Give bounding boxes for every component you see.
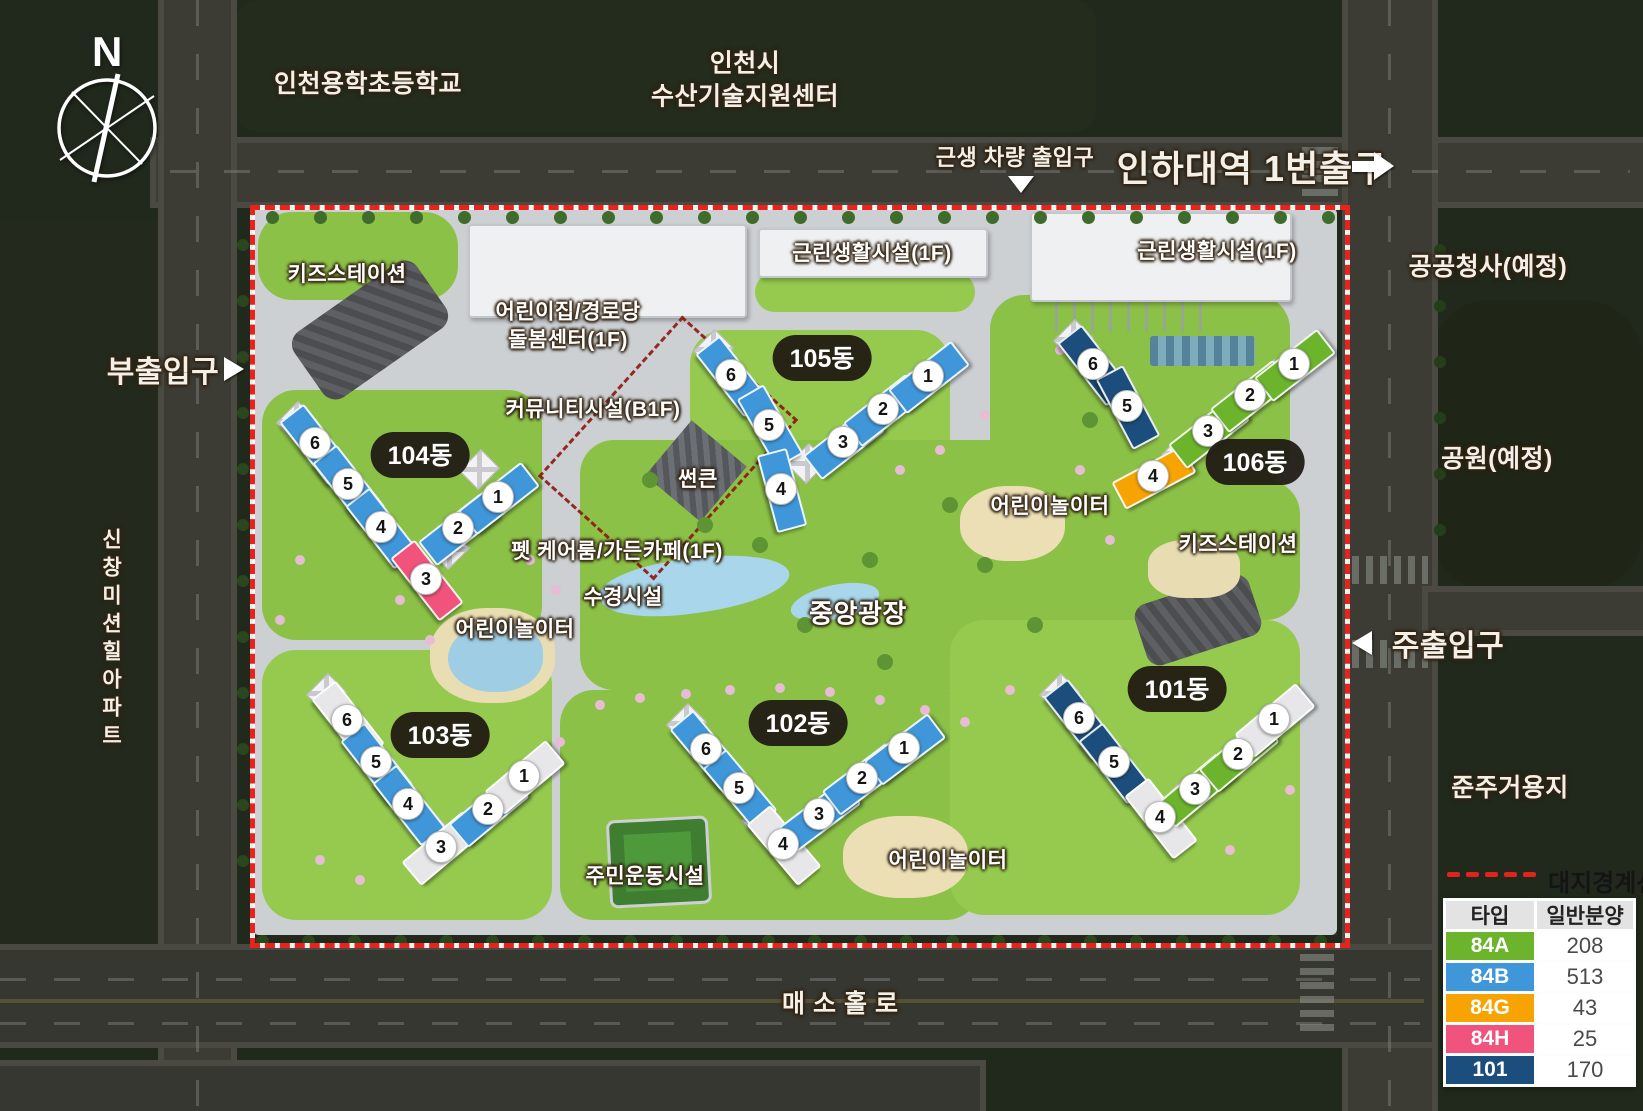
unit-number-badge: 6 [1063, 702, 1095, 734]
unit-number-badge: 3 [1179, 773, 1211, 805]
label-playground-s: 어린이놀이터 [889, 844, 1008, 874]
bush [1082, 412, 1098, 428]
unit-number-badge: 1 [912, 360, 944, 392]
label-sub-entrance: 부출입구 [107, 347, 219, 391]
legend-type-cell: 84G [1446, 994, 1534, 1022]
street-tree [1084, 935, 1097, 948]
street-tree [716, 935, 729, 948]
street-tree [842, 211, 855, 224]
sub-entrance-arrow-icon [224, 357, 244, 381]
street-tree [237, 687, 249, 699]
label-school: 인천용학초등학교 [274, 64, 462, 100]
street-tree [746, 211, 759, 224]
street-tree [1434, 356, 1446, 368]
label-retail-b: 근린생활시설(1F) [1137, 235, 1296, 265]
blossom-tree [315, 855, 325, 865]
unit-number-badge: 1 [888, 732, 920, 764]
unit-number-badge: 4 [365, 511, 397, 543]
label-semi-residential: 준주거용지 [1451, 768, 1569, 804]
unit-number-badge: 4 [765, 473, 797, 505]
bush [1027, 617, 1043, 633]
street-tree [237, 519, 249, 531]
unit-type-legend-table: 타입 일반분양 84A20884B51384G4384H25101170 [1443, 898, 1636, 1087]
building-label: 106동 [1206, 439, 1305, 485]
street-tree [348, 935, 361, 948]
blossom-tree [681, 689, 691, 699]
label-main-entrance: 주출입구 [1392, 621, 1504, 665]
street-tree [650, 211, 663, 224]
street-tree [1434, 412, 1446, 424]
legend-header-sale: 일반분양 [1537, 901, 1633, 929]
blossom-tree [935, 445, 945, 455]
unit-number-badge: 5 [360, 746, 392, 778]
compass-rose: N [44, 28, 174, 193]
blossom-tree [1225, 845, 1235, 855]
unit-number-badge: 2 [442, 512, 474, 544]
street-tree [1222, 935, 1235, 948]
street-tree [237, 463, 249, 475]
street-tree [302, 935, 315, 948]
street-tree [486, 935, 499, 948]
street-tree [554, 211, 567, 224]
crosswalk [1300, 954, 1334, 1038]
bush [862, 552, 878, 568]
street-tree [1274, 211, 1287, 224]
unit-number-badge: 2 [472, 793, 504, 825]
main-entrance-arrow-icon [1352, 631, 1372, 655]
label-fisheries-line1: 인천시 [710, 50, 781, 78]
label-residents-exercise: 주민운동시설 [586, 860, 705, 890]
blossom-tree [725, 685, 735, 695]
label-park: 공원(예정) [1441, 439, 1553, 475]
street-tree [762, 935, 775, 948]
label-sunken: 썬큰 [678, 463, 718, 493]
retail-vehicle-entrance-arrow-icon [1008, 176, 1034, 193]
street-tree [1226, 211, 1239, 224]
label-daycare-line2: 돌봄센터(1F) [508, 329, 628, 352]
unit-number-badge: 4 [392, 788, 424, 820]
label-station-exit: 인하대역 1번출구 [1117, 140, 1388, 192]
street-tree [237, 239, 249, 251]
legend-type-cell: 101 [1446, 1056, 1534, 1084]
unit-number-badge: 5 [723, 772, 755, 804]
building-label: 105동 [773, 335, 872, 381]
lawn [755, 272, 975, 312]
street-tree [314, 211, 327, 224]
blossom-tree [960, 717, 970, 727]
label-playground-e: 어린이놀이터 [991, 490, 1110, 520]
unit-number-badge: 3 [410, 563, 442, 595]
legend-count-cell: 208 [1537, 932, 1633, 960]
street-tree [410, 211, 423, 224]
unit-number-badge: 5 [1098, 746, 1130, 778]
crosswalk [1352, 556, 1428, 584]
legend-header-type: 타입 [1446, 901, 1534, 929]
legend-type-cell: 84A [1446, 932, 1534, 960]
street-tree [256, 935, 269, 948]
unit-number-badge: 2 [846, 762, 878, 794]
street-tree [1268, 935, 1281, 948]
blossom-tree [295, 555, 305, 565]
street-tree [394, 935, 407, 948]
street-tree [1314, 935, 1327, 948]
label-neighbor-apartment: 신창미션힐아파트 [95, 528, 125, 752]
lane-marking [0, 978, 1420, 981]
boundary-legend-dashes [1447, 872, 1536, 877]
bush [942, 497, 958, 513]
unit-number-badge: 6 [1077, 348, 1109, 380]
label-public-office: 공공청사(예정) [1409, 247, 1568, 283]
unit-number-badge: 5 [332, 468, 364, 500]
building-label: 102동 [749, 700, 848, 746]
unit-number-badge: 3 [827, 426, 859, 458]
unit-number-badge: 4 [767, 828, 799, 860]
building-label: 103동 [391, 712, 490, 758]
street-tree [900, 935, 913, 948]
blossom-tree [1285, 785, 1295, 795]
unit-number-badge: 5 [1111, 390, 1143, 422]
street-tree [946, 935, 959, 948]
site-plan-map: 654321104동654321105동654321106동654321103동… [0, 0, 1643, 1111]
label-retail-a: 근린생활시설(1F) [792, 237, 951, 267]
street-tree [237, 631, 249, 643]
street-tree [237, 855, 249, 867]
street-tree [1130, 211, 1143, 224]
bush [642, 472, 658, 488]
unit-number-badge: 4 [1137, 460, 1169, 492]
legend-count-cell: 25 [1537, 1025, 1633, 1053]
street-tree [1082, 211, 1095, 224]
legend-count-cell: 43 [1537, 994, 1633, 1022]
bush [977, 557, 993, 573]
street-tree [440, 935, 453, 948]
blossom-tree [551, 585, 561, 595]
legend-type-cell: 84H [1446, 1025, 1534, 1053]
south-road [0, 950, 1432, 1042]
unit-number-badge: 6 [715, 359, 747, 391]
street-tree [670, 935, 683, 948]
label-playground-w: 어린이놀이터 [456, 613, 575, 643]
street-tree [237, 799, 249, 811]
blossom-tree [1005, 685, 1015, 695]
building-label: 101동 [1128, 666, 1227, 712]
street-tree [266, 211, 279, 224]
unit-number-badge: 2 [867, 393, 899, 425]
lane-marking [170, 170, 1630, 173]
label-retail-vehicle-entrance: 근생 차량 출입구 [936, 140, 1094, 172]
unit-number-badge: 3 [425, 831, 457, 863]
street-tree [237, 743, 249, 755]
label-fisheries-line2: 수산기술지원센터 [651, 82, 839, 110]
label-fisheries-center: 인천시 수산기술지원센터 [651, 48, 839, 113]
blossom-tree [635, 693, 645, 703]
blossom-tree [355, 875, 365, 885]
street-tree [1038, 935, 1051, 948]
unit-number-badge: 6 [331, 704, 363, 736]
center-line [0, 999, 1424, 1003]
bush [752, 537, 768, 553]
street-tree [1034, 211, 1047, 224]
street-tree [1322, 211, 1335, 224]
blossom-tree [1075, 465, 1085, 475]
building-label: 104동 [371, 432, 470, 478]
street-tree [624, 935, 637, 948]
label-pet-care-cafe: 펫 케어룸/가든카페(1F) [511, 535, 723, 565]
label-community: 커뮤니티시설(B1F) [505, 393, 680, 423]
street-tree [854, 935, 867, 948]
unit-number-badge: 4 [1144, 801, 1176, 833]
compass-north-letter: N [92, 28, 122, 75]
street-tree [808, 935, 821, 948]
street-tree [1130, 935, 1143, 948]
bush [697, 517, 713, 533]
street-tree [986, 211, 999, 224]
street-tree [532, 935, 545, 948]
street-tree [1434, 300, 1446, 312]
blossom-tree [555, 737, 565, 747]
street-tree [938, 211, 951, 224]
label-daycare-line1: 어린이집/경로당 [495, 301, 640, 324]
street-tree [1178, 211, 1191, 224]
label-central-plaza: 중앙광장 [809, 594, 907, 631]
legend-count-cell: 170 [1537, 1056, 1633, 1084]
street-tree [506, 211, 519, 224]
legend-count-cell: 513 [1537, 963, 1633, 991]
street-tree [362, 211, 375, 224]
street-tree [1434, 524, 1446, 536]
street-tree [1176, 935, 1189, 948]
blossom-tree [980, 410, 990, 420]
blossom-tree [875, 695, 885, 705]
blossom-tree [895, 465, 905, 475]
label-kids-station-nw: 키즈스테이션 [288, 258, 407, 288]
boundary-legend-label: 대지경계선 [1548, 863, 1643, 898]
unit-number-badge: 2 [1222, 738, 1254, 770]
street-tree [698, 211, 711, 224]
unit-number-badge: 3 [803, 798, 835, 830]
legend-type-cell: 84B [1446, 963, 1534, 991]
unit-number-badge: 2 [1234, 379, 1266, 411]
street-tree [794, 211, 807, 224]
west-apartment-grounds [0, 220, 160, 960]
street-tree [602, 211, 615, 224]
label-kids-station-e: 키즈스테이션 [1179, 528, 1298, 558]
street-tree [578, 935, 591, 948]
street-tree [237, 407, 249, 419]
bush [877, 654, 893, 670]
unit-number-badge: 6 [690, 733, 722, 765]
label-south-road: 매소홀로 [782, 984, 906, 1020]
lane-marking [0, 1022, 1420, 1025]
unit-number-badge: 1 [1258, 703, 1290, 735]
blossom-tree [1105, 535, 1115, 545]
street-tree [992, 935, 1005, 948]
street-tree [458, 211, 471, 224]
label-daycare: 어린이집/경로당 돌봄센터(1F) [495, 299, 640, 356]
blossom-tree [775, 683, 785, 693]
blossom-tree [395, 595, 405, 605]
bike-racks [1150, 336, 1255, 366]
street-tree [237, 575, 249, 587]
blossom-tree [825, 687, 835, 697]
unit-number-badge: 1 [482, 481, 514, 513]
south-road-frontage [0, 1066, 980, 1111]
blossom-tree [425, 635, 435, 645]
station-exit-arrow-icon [1352, 152, 1394, 180]
unit-number-badge: 5 [753, 409, 785, 441]
unit-number-badge: 1 [1278, 348, 1310, 380]
lane-marking [196, 0, 199, 1111]
label-water-feature: 수경시설 [583, 581, 662, 611]
blossom-tree [275, 615, 285, 625]
blossom-tree [595, 700, 605, 710]
unit-number-badge: 6 [299, 427, 331, 459]
street-tree [237, 295, 249, 307]
street-tree [890, 211, 903, 224]
unit-number-badge: 1 [508, 760, 540, 792]
